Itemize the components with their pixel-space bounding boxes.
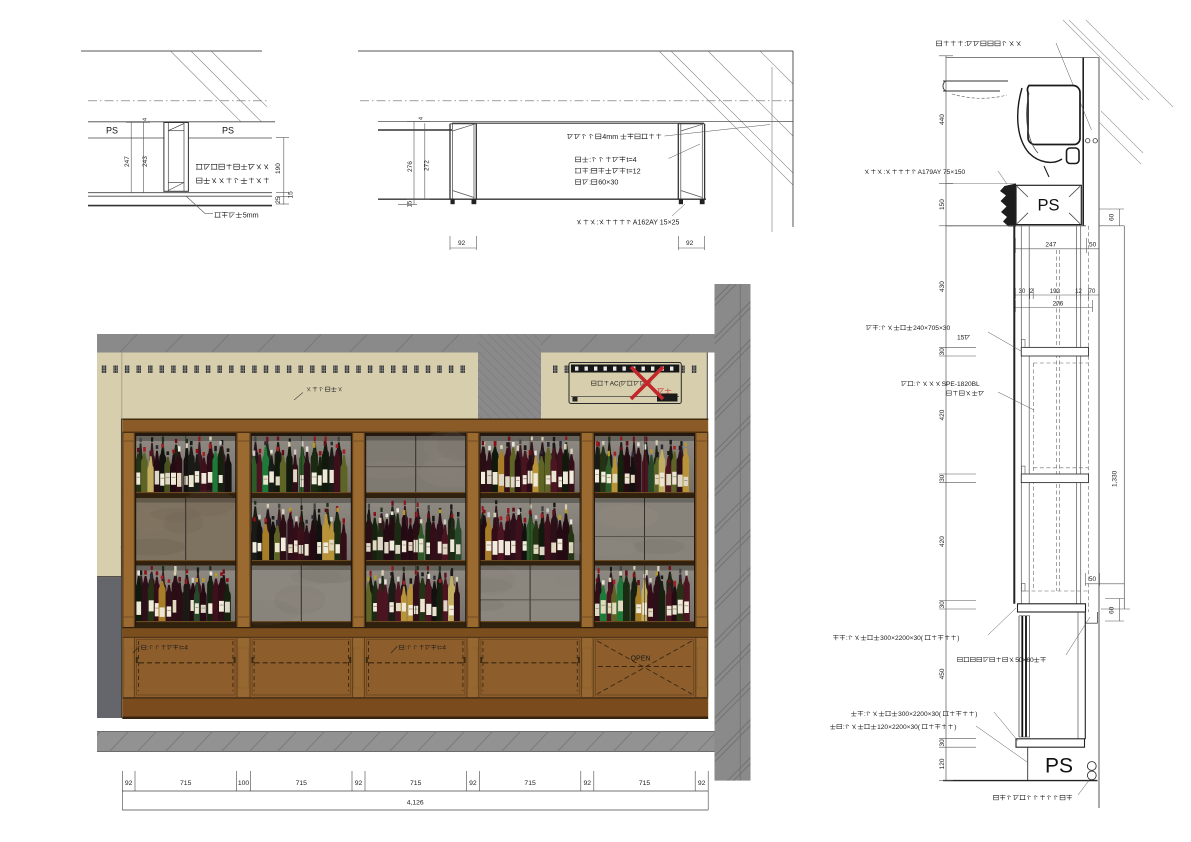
svg-text:30: 30 (939, 474, 946, 482)
svg-text:92: 92 (698, 780, 706, 787)
svg-text:PS: PS (222, 126, 234, 136)
svg-text::: : (964, 39, 966, 48)
svg-text:SPE-1820BL: SPE-1820BL (942, 381, 980, 388)
svg-text:25: 25 (275, 196, 282, 204)
svg-text:276: 276 (407, 161, 414, 172)
svg-text:60×30: 60×30 (598, 178, 618, 187)
svg-text::: : (589, 155, 591, 164)
svg-text:4: 4 (143, 118, 149, 121)
svg-text:100: 100 (238, 780, 250, 787)
svg-text:276: 276 (1053, 301, 1064, 308)
svg-text:92: 92 (458, 240, 466, 247)
svg-text::: : (846, 635, 848, 642)
svg-text:715: 715 (296, 780, 308, 787)
svg-text:300×2200×30(: 300×2200×30( (898, 711, 942, 718)
svg-text:50×60: 50×60 (1015, 657, 1034, 664)
svg-text::: : (883, 169, 885, 176)
svg-text:4,126: 4,126 (407, 800, 424, 807)
svg-text:272: 272 (424, 160, 431, 171)
svg-text:OPEN: OPEN (631, 656, 651, 663)
svg-text:A162AY 15×25: A162AY 15×25 (633, 220, 680, 227)
svg-text::: : (405, 645, 407, 652)
svg-text:15: 15 (288, 191, 295, 199)
svg-text:60: 60 (1108, 606, 1115, 614)
svg-text:t=4: t=4 (179, 645, 188, 652)
svg-text:AC(: AC( (610, 381, 622, 388)
svg-text:5mm: 5mm (243, 211, 259, 220)
svg-text:30: 30 (1019, 289, 1026, 295)
svg-text:30: 30 (939, 739, 946, 747)
svg-text::: : (597, 220, 599, 227)
svg-text:715: 715 (180, 780, 192, 787)
svg-text::: : (147, 645, 149, 652)
svg-text:50: 50 (1089, 242, 1097, 249)
svg-text:92: 92 (584, 780, 592, 787)
svg-text:92: 92 (469, 780, 477, 787)
svg-text:450: 450 (939, 668, 946, 679)
svg-text:A179AY 75×150: A179AY 75×150 (918, 169, 966, 176)
svg-text:92: 92 (125, 780, 133, 787)
svg-text:240×705×30: 240×705×30 (913, 325, 950, 332)
svg-text:15: 15 (408, 200, 414, 207)
svg-text:30: 30 (939, 601, 946, 609)
svg-text:15: 15 (957, 335, 965, 342)
svg-text:430: 430 (939, 281, 946, 292)
svg-text::: : (843, 724, 845, 731)
svg-text:PS: PS (1045, 755, 1073, 778)
svg-text::: : (589, 178, 591, 187)
svg-text:): ) (954, 724, 956, 731)
svg-text:PS: PS (1037, 197, 1059, 215)
svg-text:243: 243 (142, 156, 149, 167)
svg-text::: : (589, 166, 591, 175)
svg-text:247: 247 (124, 156, 131, 167)
svg-text:440: 440 (939, 114, 946, 125)
svg-text:192: 192 (1050, 289, 1061, 295)
svg-text:247: 247 (1045, 242, 1056, 249)
svg-text:70: 70 (1089, 289, 1096, 295)
svg-text:715: 715 (410, 780, 422, 787)
svg-text:1,330: 1,330 (1112, 470, 1119, 487)
svg-text:190: 190 (275, 163, 282, 174)
svg-text:92: 92 (355, 780, 363, 787)
svg-text:715: 715 (639, 780, 651, 787)
svg-text::: : (864, 711, 866, 718)
svg-text:50: 50 (1089, 576, 1097, 583)
svg-text:420: 420 (939, 409, 946, 420)
svg-text::: : (914, 381, 916, 388)
svg-text:150: 150 (939, 199, 946, 210)
svg-text:t=4: t=4 (437, 645, 446, 652)
svg-text:60: 60 (1108, 213, 1115, 221)
svg-text:4mm: 4mm (602, 132, 618, 141)
svg-text:4: 4 (419, 117, 425, 120)
svg-text:30: 30 (939, 348, 946, 356)
svg-text:): ) (975, 711, 977, 718)
svg-text:420: 420 (939, 536, 946, 547)
svg-text:715: 715 (524, 780, 536, 787)
svg-text:120: 120 (939, 758, 946, 769)
svg-text:t=12: t=12 (626, 166, 640, 175)
svg-text:300×2200×30(: 300×2200×30( (880, 635, 924, 642)
svg-text:120×2200×30(: 120×2200×30( (877, 724, 921, 731)
svg-text:t=4: t=4 (626, 155, 636, 164)
svg-text:): ) (957, 635, 959, 642)
svg-text::: : (879, 325, 881, 332)
svg-text:PS: PS (106, 126, 118, 136)
svg-text:92: 92 (686, 240, 694, 247)
